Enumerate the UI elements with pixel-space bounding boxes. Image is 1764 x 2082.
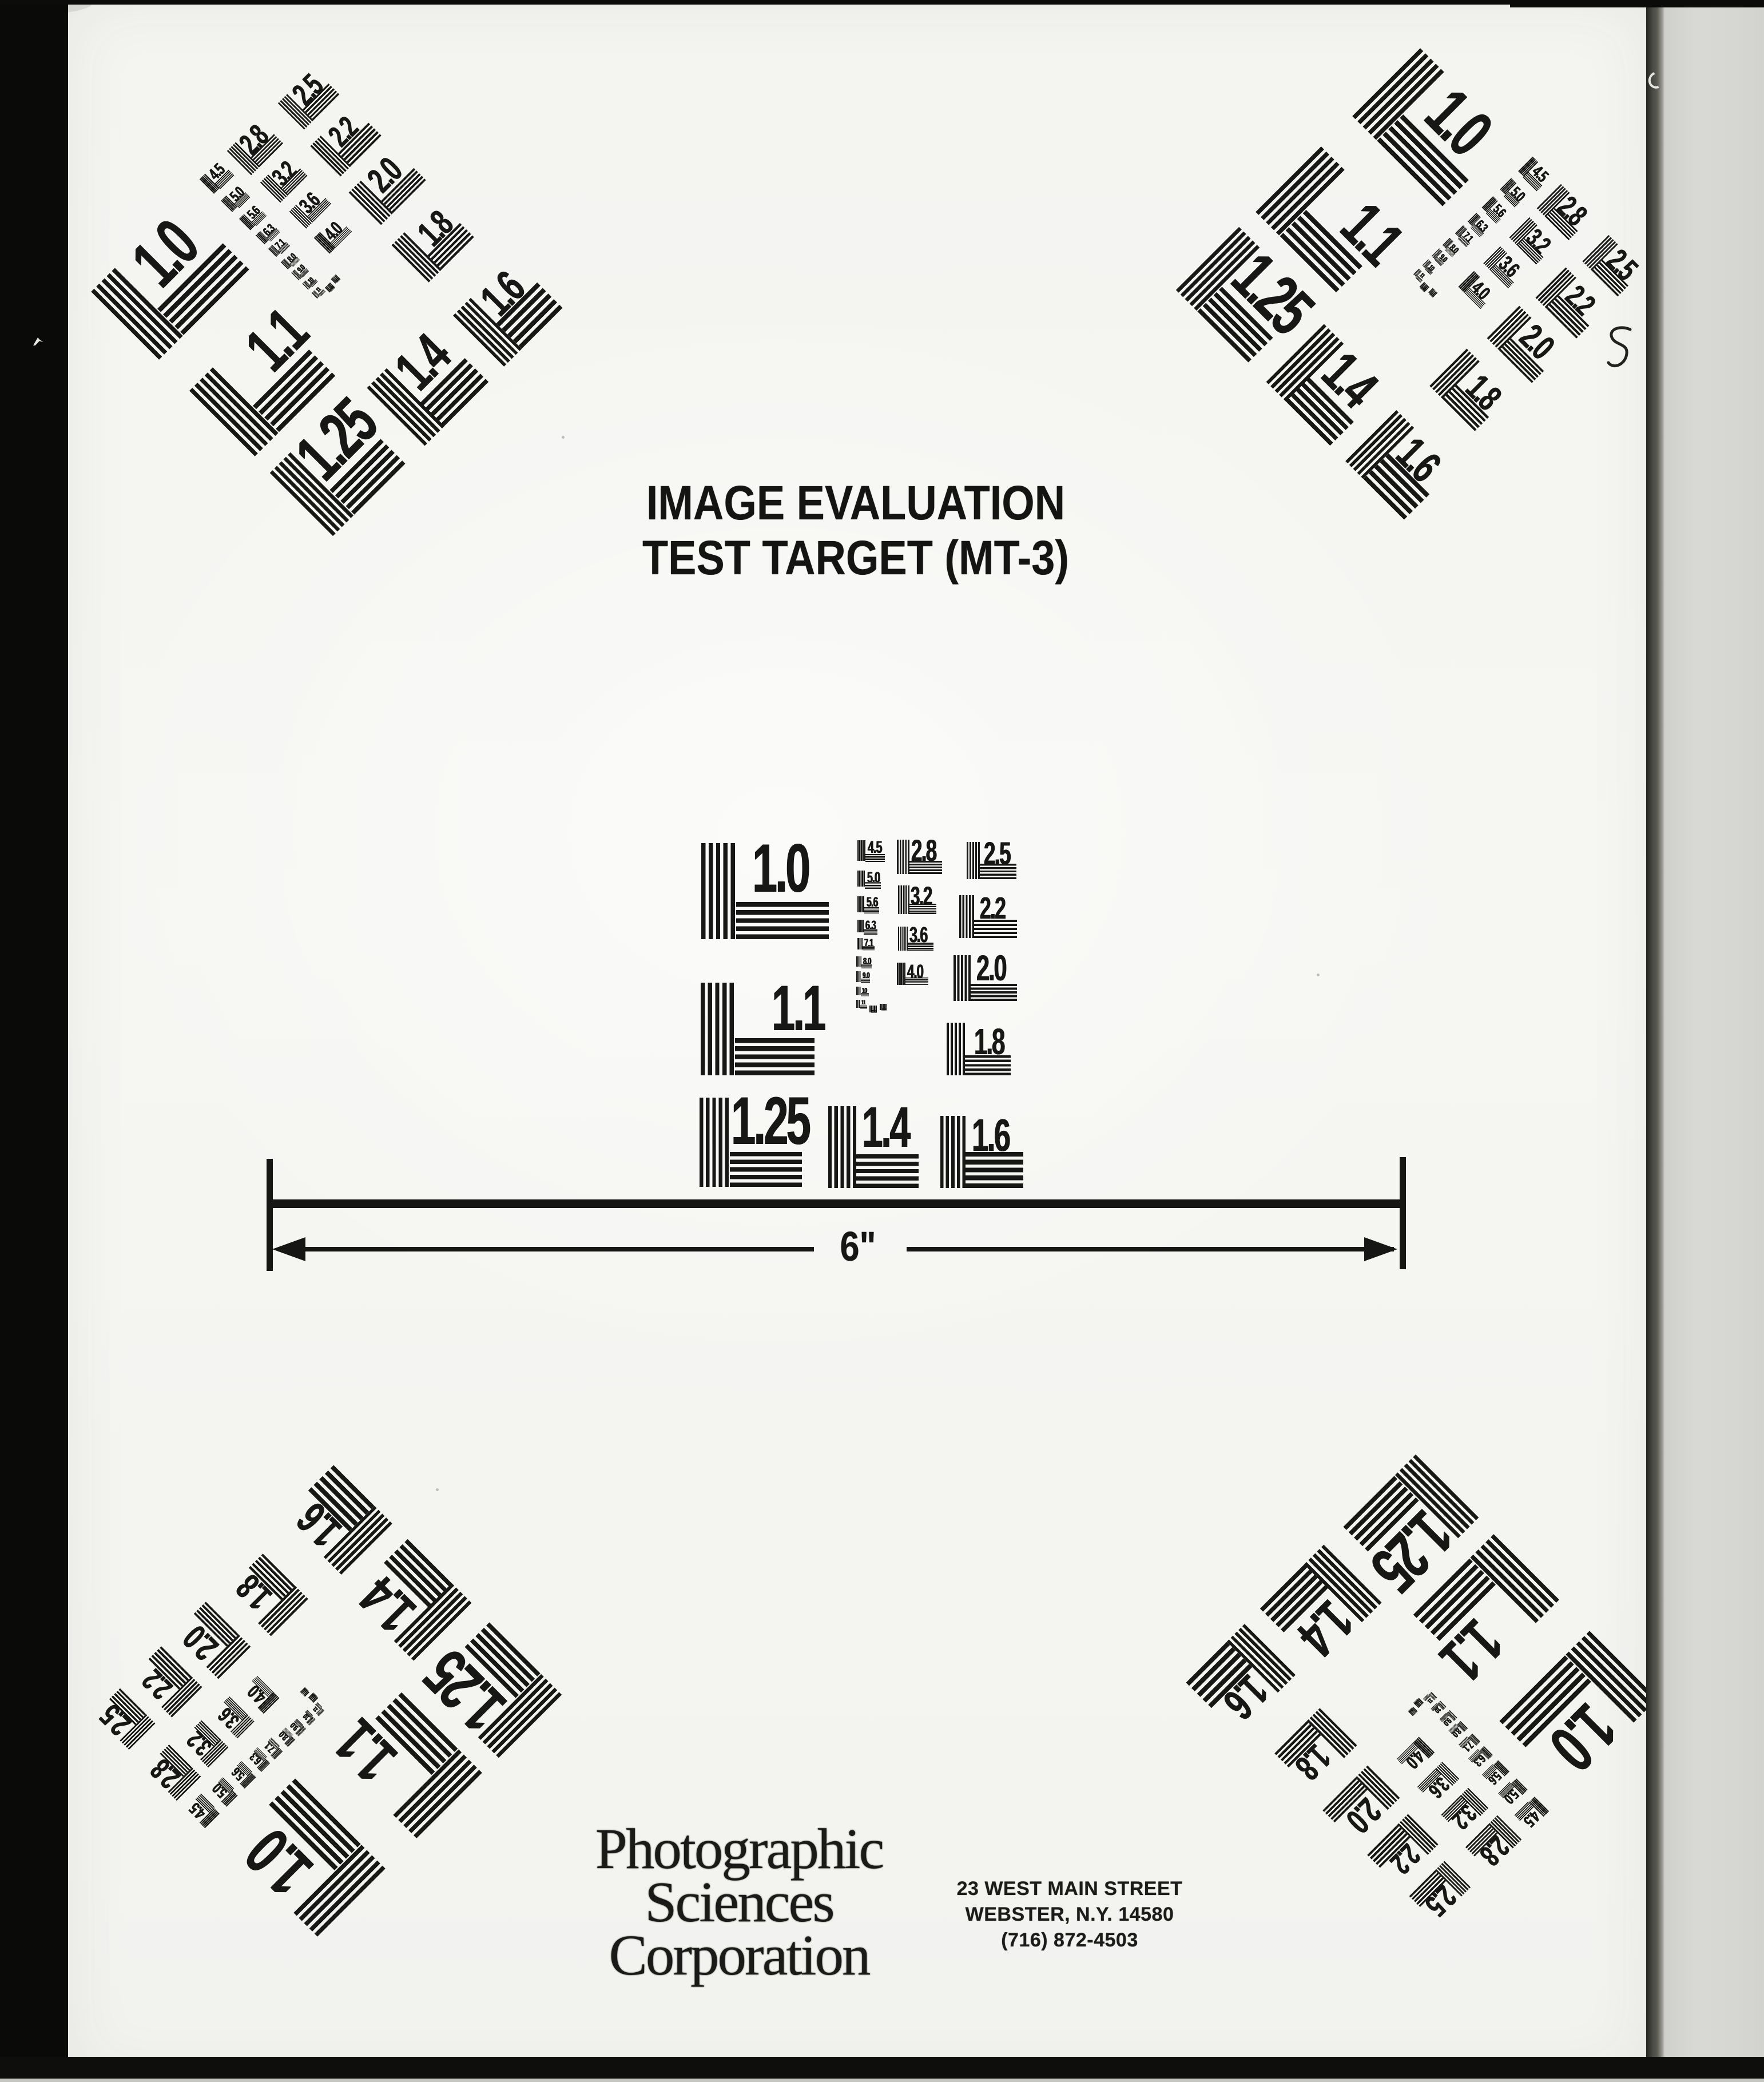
scale-bar-label: 6" [816, 1226, 900, 1268]
vertical-bars [856, 971, 861, 982]
vertical-bars [701, 843, 735, 939]
vertical-bars [947, 1023, 965, 1075]
horizontal-bars [966, 1152, 1023, 1188]
company-logo: Photographic Sciences Corporation [510, 1822, 968, 1982]
scale-bar-line [270, 1199, 1403, 1208]
test-element-label: 1.25 [731, 1087, 809, 1155]
horizontal-bars [980, 864, 1016, 879]
scale-arrow-shaft-left [278, 1247, 814, 1251]
horizontal-bars [860, 1006, 867, 1009]
vertical-bars [856, 1000, 860, 1008]
address-line1: 23 WEST MAIN STREET [927, 1876, 1213, 1902]
vertical-bars [967, 842, 980, 879]
scan-edge-top [0, 0, 1764, 5]
horizontal-bars [861, 979, 870, 983]
horizontal-bars [908, 943, 933, 951]
vertical-bars [897, 963, 905, 985]
vertical-bars [857, 920, 864, 932]
horizontal-bars [871, 1010, 877, 1013]
vertical-bars [897, 840, 909, 874]
right-arrowhead-icon [1364, 1237, 1397, 1261]
address-line3: (716) 872-4503 [927, 1928, 1213, 1953]
vertical-bars [857, 896, 864, 912]
scan-edge-bottom [0, 2057, 1764, 2079]
test-element-label: 1.1 [772, 976, 824, 1040]
vertical-bars [898, 927, 908, 951]
test-element-label: 2.0 [976, 951, 1006, 987]
horizontal-bars [855, 1154, 919, 1188]
company-name-line1: Photographic [510, 1822, 968, 1876]
company-name-line2: Sciences [510, 1876, 968, 1929]
horizontal-bars [865, 882, 881, 889]
vertical-bars [898, 885, 909, 914]
horizontal-bars [730, 1152, 802, 1187]
handwriting-mark [1605, 325, 1635, 374]
horizontal-bars [909, 861, 942, 874]
scan-edge-top-right [1510, 0, 1764, 7]
vertical-bars [856, 987, 861, 995]
horizontal-bars [736, 902, 829, 939]
scale-arrow-shaft-right [907, 1247, 1394, 1251]
page-edge-shadow [1646, 0, 1664, 2082]
paper-dot [562, 436, 565, 439]
company-address: 23 WEST MAIN STREET WEBSTER, N.Y. 14580 … [927, 1876, 1213, 1953]
adjacent-page-surface [1664, 0, 1764, 2082]
page-title-line2: TEST TARGET (MT-3) [629, 531, 1082, 586]
horizontal-bars [881, 1008, 887, 1011]
horizontal-bars [965, 1055, 1011, 1075]
horizontal-bars [861, 964, 872, 968]
left-arrowhead-icon [272, 1237, 305, 1261]
vertical-bars [959, 895, 974, 938]
horizontal-bars [864, 929, 877, 935]
test-element-label: 1.4 [862, 1099, 909, 1156]
scanned-test-target-page: 1.01.11.251.41.61.82.02.22.52.83.23.64.0… [0, 0, 1764, 2082]
horizontal-bars [863, 946, 875, 951]
vertical-bars [857, 871, 865, 887]
scale-bar-right-end [1400, 1157, 1406, 1269]
horizontal-bars [905, 978, 928, 985]
vertical-bars [700, 1098, 729, 1187]
horizontal-bars [974, 920, 1017, 938]
paper-dot [436, 1488, 439, 1491]
test-element-label: 1.8 [974, 1023, 1004, 1060]
page-title: IMAGE EVALUATION TEST TARGET (MT-3) [629, 476, 1082, 586]
horizontal-bars [864, 907, 879, 913]
vertical-bars [828, 1106, 856, 1188]
horizontal-bars [861, 993, 869, 996]
horizontal-bars [909, 904, 936, 914]
address-line2: WEBSTER, N.Y. 14580 [927, 1902, 1213, 1928]
horizontal-bars [971, 984, 1017, 1001]
vertical-bars [857, 938, 863, 949]
vertical-bars [953, 955, 971, 1001]
test-element-label: 2.2 [980, 893, 1005, 924]
vertical-bars [701, 983, 734, 1075]
test-element-label: 1.0 [752, 834, 808, 903]
horizontal-bars [735, 1038, 815, 1075]
horizontal-bars [865, 854, 885, 862]
vertical-bars [856, 956, 861, 967]
test-element-label: 1.6 [972, 1112, 1009, 1158]
paper-dot [1317, 974, 1320, 976]
company-name-line3: Corporation [510, 1929, 968, 1982]
vertical-bars [857, 840, 865, 861]
page-title-line1: IMAGE EVALUATION [629, 476, 1082, 531]
resolution-test-pattern-center: 1.01.11.251.41.61.82.02.22.52.83.23.64.0… [688, 828, 1043, 1194]
scan-edge-bottom-line [0, 2079, 1764, 2082]
scan-edge-left [0, 0, 68, 2082]
vertical-bars [940, 1116, 966, 1188]
